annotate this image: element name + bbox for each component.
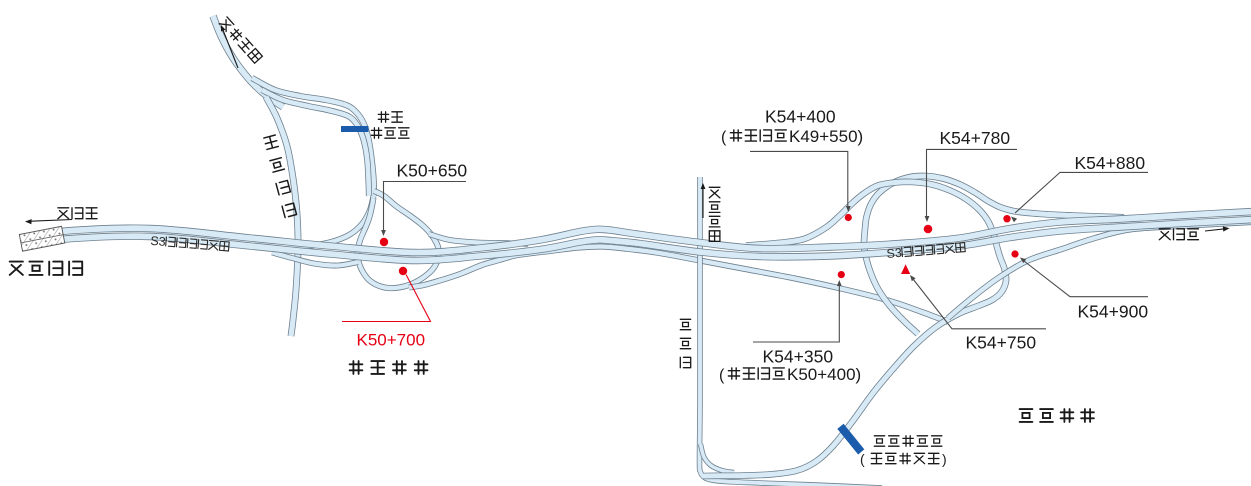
svg-text:K54+400: K54+400 xyxy=(765,107,836,127)
svg-text:S3: S3 xyxy=(886,246,902,261)
svg-text:K50+400): K50+400) xyxy=(787,365,861,384)
svg-text:): ) xyxy=(942,451,947,467)
svg-text:(: ( xyxy=(860,451,865,467)
svg-text:K50+650: K50+650 xyxy=(397,161,468,181)
svg-text:(: ( xyxy=(719,367,725,384)
svg-text:(: ( xyxy=(721,129,727,146)
svg-text:K54+880: K54+880 xyxy=(1075,153,1146,173)
svg-text:K54+780: K54+780 xyxy=(940,128,1011,148)
svg-text:K50+700: K50+700 xyxy=(357,331,426,350)
svg-text:K54+900: K54+900 xyxy=(1078,302,1149,322)
svg-text:K54+750: K54+750 xyxy=(966,333,1037,353)
svg-text:K49+550): K49+550) xyxy=(789,127,863,146)
svg-text:S3: S3 xyxy=(150,234,166,249)
svg-text:K54+350: K54+350 xyxy=(763,347,834,367)
